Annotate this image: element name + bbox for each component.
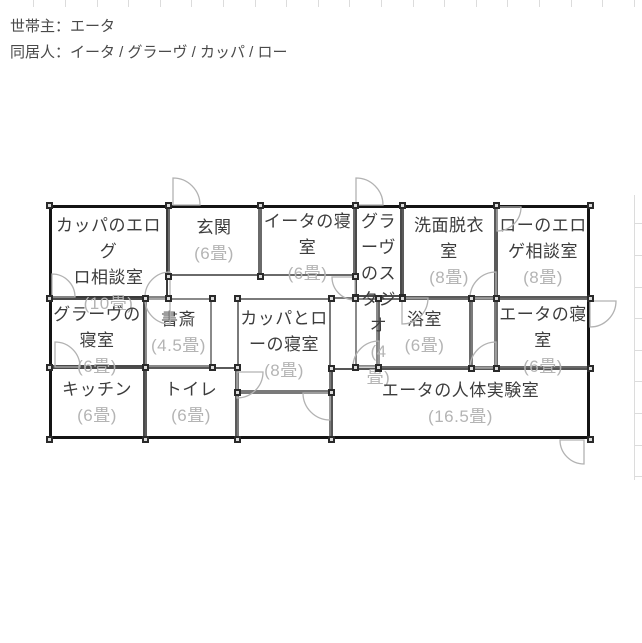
room-label-yokushitsu: 浴室(6畳) bbox=[378, 307, 471, 359]
room-name-label: カッパとロ bbox=[237, 306, 331, 332]
room-size-label: (8畳) bbox=[237, 358, 331, 384]
room-label-senmen-datsui: 洗面脱衣室(8畳) bbox=[402, 213, 496, 291]
corner-handle bbox=[165, 273, 172, 280]
room-size-label: (6畳) bbox=[145, 403, 237, 429]
householder-line: 世帯主：エータ bbox=[10, 14, 115, 39]
grid-tick bbox=[634, 350, 642, 351]
room-name-label: イータの寝 bbox=[260, 209, 355, 235]
room-name-label: 寝室 bbox=[49, 328, 145, 354]
corner-handle bbox=[587, 365, 594, 372]
room-name-label: 洗面脱衣 bbox=[402, 213, 496, 239]
corner-handle bbox=[468, 295, 475, 302]
grid-tick bbox=[160, 0, 161, 7]
room-label-shosai: 書斎(4.5畳) bbox=[145, 307, 212, 359]
room-label-eta-bedroom: エータの寝室(6畳) bbox=[496, 302, 590, 380]
corner-handle bbox=[587, 436, 594, 443]
door-arc bbox=[173, 178, 200, 205]
corner-handle bbox=[587, 202, 594, 209]
room-name-label: ロ相談室 bbox=[49, 265, 168, 291]
grid-tick bbox=[318, 0, 319, 7]
corner-handle bbox=[468, 365, 475, 372]
grid-tick bbox=[286, 0, 287, 7]
room-size-label: (16.5畳) bbox=[331, 404, 590, 430]
page: 世帯主：エータ 同居人：イータ / グラーヴ / カッパ / ロー カッパのエロ… bbox=[0, 0, 642, 643]
room-size-label: (6畳) bbox=[168, 241, 260, 267]
corner-handle bbox=[352, 202, 359, 209]
room-label-grave-bedroom: グラーヴの寝室(6畳) bbox=[49, 302, 145, 380]
corner-handle bbox=[493, 365, 500, 372]
grid-tick bbox=[349, 0, 350, 7]
grid-tick bbox=[634, 413, 642, 414]
corner-handle bbox=[375, 364, 382, 371]
room-name-label: 玄関 bbox=[168, 215, 260, 241]
room-name-label: 浴室 bbox=[378, 307, 471, 333]
room-label-kappa-eroguro-soudan: カッパのエログロ相談室(10畳) bbox=[49, 213, 168, 317]
room-name-label: 書斎 bbox=[145, 307, 212, 333]
grid-tick bbox=[507, 0, 508, 7]
room-label-kappa-ro-bedroom: カッパとローの寝室(8畳) bbox=[237, 306, 331, 384]
grid-tick bbox=[634, 0, 635, 7]
grid-tick bbox=[413, 0, 414, 7]
grid-tick bbox=[634, 223, 642, 224]
grid-tick bbox=[255, 0, 256, 7]
grid-tick bbox=[191, 0, 192, 7]
corner-handle bbox=[257, 202, 264, 209]
grid-tick bbox=[444, 0, 445, 7]
corner-handle bbox=[234, 295, 241, 302]
corner-handle bbox=[142, 295, 149, 302]
corner-handle bbox=[328, 436, 335, 443]
room-name-label: キッチン bbox=[49, 377, 145, 403]
room-name-label: グラ bbox=[355, 209, 402, 235]
door-arc bbox=[560, 440, 584, 464]
corner-handle bbox=[234, 364, 241, 371]
door-arc bbox=[356, 178, 383, 205]
room-size-label: (8畳) bbox=[496, 265, 590, 291]
grid-tick bbox=[602, 0, 603, 7]
room-name-label: ーヴ bbox=[355, 235, 402, 261]
room-name-label: トイレ bbox=[145, 377, 237, 403]
room-name-label: グラーヴの bbox=[49, 302, 145, 328]
grid-tick bbox=[571, 0, 572, 7]
corner-handle bbox=[493, 202, 500, 209]
grid-tick bbox=[223, 0, 224, 7]
room-size-label: (4.5畳) bbox=[145, 333, 212, 359]
room-size-label: (6畳) bbox=[49, 403, 145, 429]
room-label-ro-eroge-soudan: ローのエロゲ相談室(8畳) bbox=[496, 213, 590, 291]
room-name-label: ローのエロ bbox=[496, 213, 590, 239]
corner-handle bbox=[328, 389, 335, 396]
corner-handle bbox=[352, 273, 359, 280]
grid-tick bbox=[65, 0, 66, 7]
corner-handle bbox=[46, 364, 53, 371]
corner-handle bbox=[234, 436, 241, 443]
corner-handle bbox=[399, 295, 406, 302]
grid-tick bbox=[476, 0, 477, 7]
grid-tick bbox=[634, 318, 642, 319]
grid-tick bbox=[128, 0, 129, 7]
corner-handle bbox=[328, 365, 335, 372]
corner-handle bbox=[352, 295, 359, 302]
room-name-label: 室 bbox=[260, 235, 355, 261]
room-name-label: 室 bbox=[496, 328, 590, 354]
grid-tick bbox=[381, 0, 382, 7]
corner-handle bbox=[375, 295, 382, 302]
room-label-eta-jintai-jikken: エータの人体実験室(16.5畳) bbox=[331, 378, 590, 430]
grid-tick bbox=[634, 255, 642, 256]
grid-line bbox=[634, 195, 635, 480]
room-label-genkan: 玄関(6畳) bbox=[168, 215, 260, 267]
corner-handle bbox=[46, 202, 53, 209]
room-name-label: のス bbox=[355, 261, 402, 287]
corner-handle bbox=[587, 295, 594, 302]
corner-handle bbox=[142, 364, 149, 371]
grid-tick bbox=[539, 0, 540, 7]
door-arc bbox=[590, 301, 616, 327]
corner-handle bbox=[165, 202, 172, 209]
corner-handle bbox=[352, 364, 359, 371]
corner-handle bbox=[142, 436, 149, 443]
corner-handle bbox=[399, 202, 406, 209]
grid-tick bbox=[634, 445, 642, 446]
grid-tick bbox=[634, 381, 642, 382]
grid-tick bbox=[33, 0, 34, 7]
grid-tick bbox=[634, 287, 642, 288]
corner-handle bbox=[46, 436, 53, 443]
room-name-label: カッパのエログ bbox=[49, 213, 168, 265]
grid-tick bbox=[97, 0, 98, 7]
corner-handle bbox=[328, 295, 335, 302]
room-size-label: (6畳) bbox=[260, 261, 355, 287]
room-label-iita-bedroom: イータの寝室(6畳) bbox=[260, 209, 355, 287]
room-name-label: 室 bbox=[402, 239, 496, 265]
room-size-label: (6畳) bbox=[496, 354, 590, 380]
room-name-label: ーの寝室 bbox=[237, 332, 331, 358]
room-name-label: エータの人体実験室 bbox=[331, 378, 590, 404]
corner-handle bbox=[209, 364, 216, 371]
room-label-toilet: トイレ(6畳) bbox=[145, 377, 237, 429]
corner-handle bbox=[234, 389, 241, 396]
corner-handle bbox=[257, 273, 264, 280]
cohabitants-line: 同居人：イータ / グラーヴ / カッパ / ロー bbox=[10, 40, 288, 65]
room-name-label: ゲ相談室 bbox=[496, 239, 590, 265]
room-label-kitchen: キッチン(6畳) bbox=[49, 377, 145, 429]
room-size-label: (6畳) bbox=[378, 333, 471, 359]
room-size-label: (8畳) bbox=[402, 265, 496, 291]
room-name-label: エータの寝 bbox=[496, 302, 590, 328]
grid-tick bbox=[634, 476, 642, 477]
corner-handle bbox=[46, 295, 53, 302]
corner-handle bbox=[165, 295, 172, 302]
corner-handle bbox=[209, 295, 216, 302]
corner-handle bbox=[493, 295, 500, 302]
